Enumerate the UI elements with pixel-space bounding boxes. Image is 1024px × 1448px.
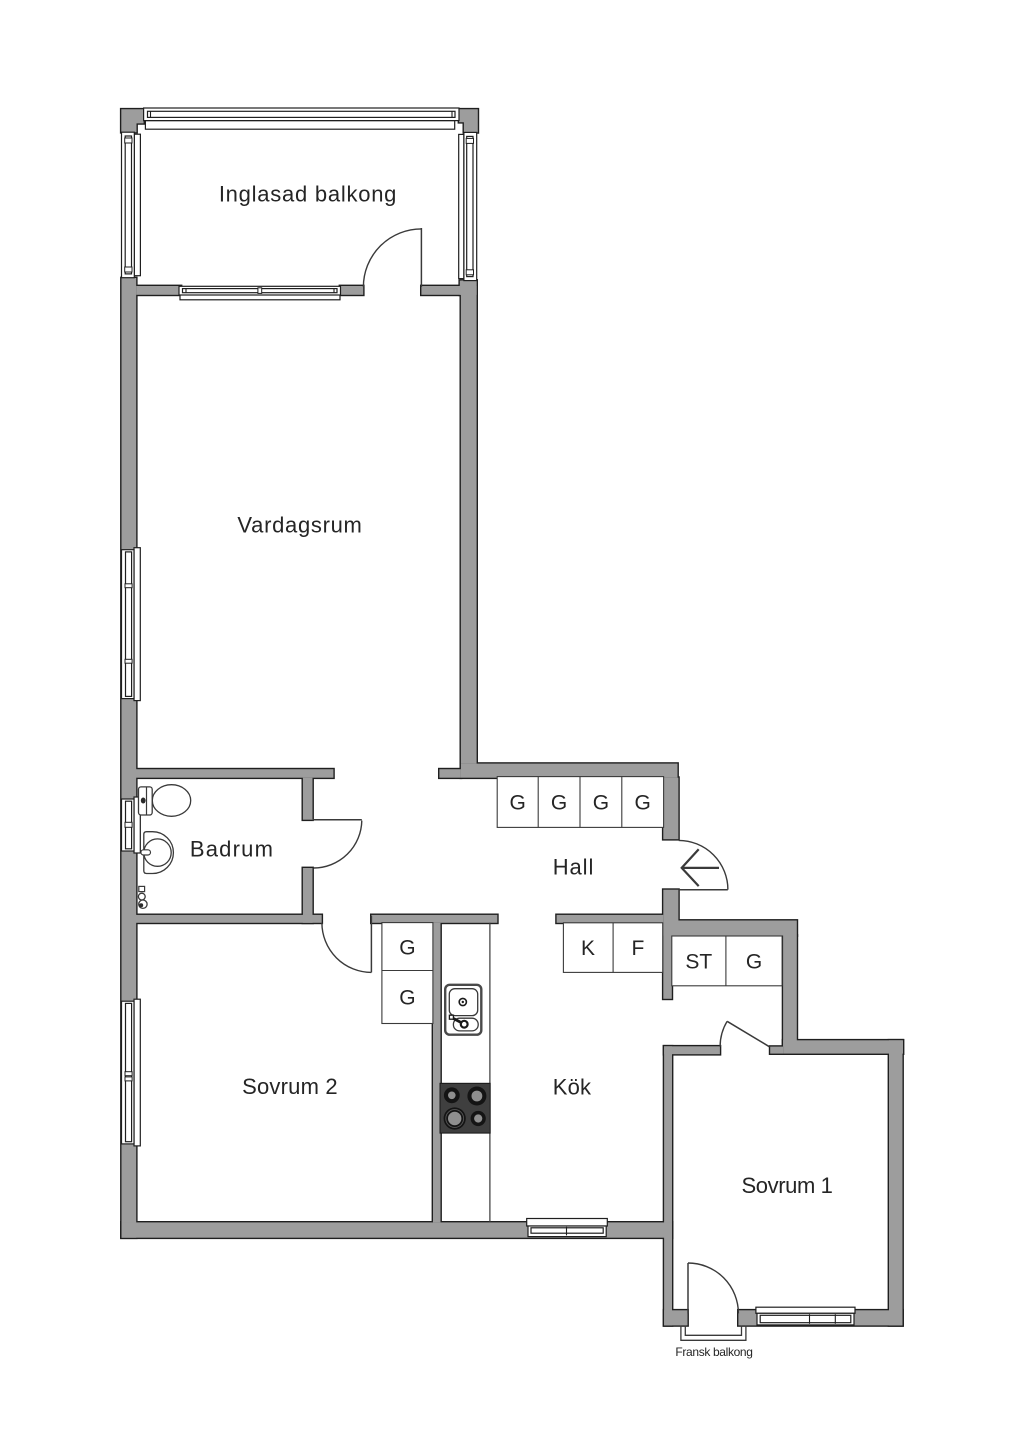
- svg-text:Kök: Kök: [553, 1075, 592, 1100]
- svg-text:Vardagsrum: Vardagsrum: [237, 513, 362, 538]
- svg-text:Sovrum 2: Sovrum 2: [242, 1074, 338, 1099]
- svg-text:G: G: [399, 986, 415, 1009]
- svg-text:G: G: [551, 792, 567, 815]
- svg-text:ST: ST: [685, 950, 712, 973]
- svg-text:K: K: [581, 937, 595, 960]
- svg-text:Sovrum 1: Sovrum 1: [742, 1173, 833, 1198]
- svg-text:F: F: [631, 937, 644, 960]
- svg-text:Fransk balkong: Fransk balkong: [675, 1345, 752, 1359]
- svg-text:G: G: [593, 792, 609, 815]
- svg-text:G: G: [510, 792, 526, 815]
- svg-text:G: G: [399, 937, 415, 960]
- svg-text:G: G: [746, 950, 762, 973]
- svg-text:Badrum: Badrum: [190, 837, 274, 862]
- svg-text:Inglasad balkong: Inglasad balkong: [219, 182, 397, 207]
- svg-text:G: G: [635, 792, 651, 815]
- svg-text:Hall: Hall: [553, 855, 595, 880]
